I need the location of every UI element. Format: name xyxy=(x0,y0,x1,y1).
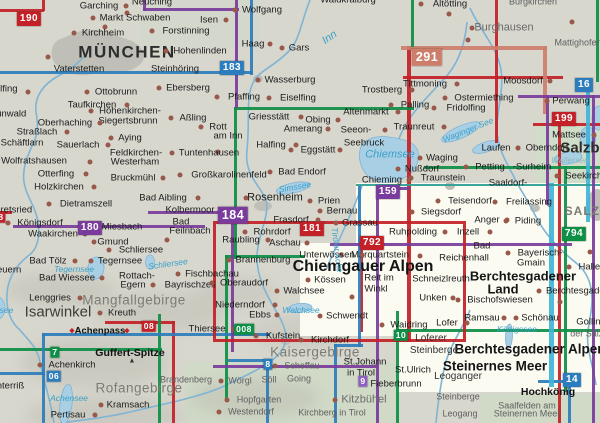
place-label: Schwendt xyxy=(326,311,368,321)
place-label: Leoganger xyxy=(434,372,482,382)
place-label: Golling xyxy=(576,317,600,327)
town-dot xyxy=(333,221,338,226)
map-index-canvas[interactable]: GarchingMarkt SchwabenKirchheimNeuchingF… xyxy=(0,0,600,423)
place-label: Siegertsbrunn xyxy=(98,116,157,126)
place-label: Ruhpolding xyxy=(389,227,437,237)
town-dot xyxy=(306,278,311,283)
town-dot xyxy=(91,16,96,21)
town-dot xyxy=(99,403,104,408)
place-label: Hallein xyxy=(578,262,600,272)
place-label: Gräfelfing xyxy=(0,84,18,94)
place-label: Aßling xyxy=(180,113,207,123)
town-dot xyxy=(84,90,89,95)
place-label: Kufstein xyxy=(266,331,300,341)
place-label: Piding xyxy=(515,216,541,226)
sheet-boundary-line xyxy=(42,333,45,423)
place-label: Wörgl xyxy=(228,377,252,386)
town-dot xyxy=(504,219,509,224)
place-label: Achenkirch xyxy=(49,360,96,370)
town-dot xyxy=(338,148,343,153)
place-label: Amerang xyxy=(284,124,323,134)
map-sheet-badge[interactable]: 199 xyxy=(552,112,576,126)
place-label: Bad Wiessee xyxy=(39,273,95,283)
town-dot xyxy=(388,103,393,108)
place-label: Steinernen Meer xyxy=(494,410,561,419)
map-sheet-badge[interactable]: 792 xyxy=(360,236,384,250)
town-dot xyxy=(455,82,460,87)
place-label: ◆ xyxy=(124,328,129,335)
place-label: Lenggries xyxy=(29,293,71,303)
town-dot xyxy=(215,95,220,100)
town-dot xyxy=(38,363,43,368)
map-sheet-badge[interactable]: 16 xyxy=(575,78,593,92)
place-label: MÜNCHEN xyxy=(78,44,175,61)
place-label: Brannenburg xyxy=(236,255,291,265)
place-label: Tegernsee xyxy=(98,256,142,266)
place-label: Moosdorf xyxy=(503,76,543,86)
place-label: Unken xyxy=(419,293,446,303)
town-dot xyxy=(463,165,468,170)
place-label: Berchtesgadener Alpen xyxy=(454,342,600,356)
town-dot xyxy=(307,199,312,204)
place-label: Großkarolinenfeld xyxy=(191,170,267,180)
town-dot xyxy=(151,283,156,288)
place-label: Freilassing xyxy=(506,197,552,207)
town-dot xyxy=(268,42,273,47)
town-dot xyxy=(492,200,497,205)
town-dot xyxy=(26,90,31,95)
place-label: Straßlach xyxy=(17,127,58,137)
town-dot xyxy=(513,316,518,321)
town-dot xyxy=(47,202,52,207)
place-label: Gmain xyxy=(517,258,545,268)
place-label: Oberaudorf xyxy=(220,278,268,288)
place-label: Mattsee xyxy=(552,130,586,140)
place-label: Walchsee xyxy=(283,286,324,296)
place-label: Leogang xyxy=(442,410,477,419)
place-label: Burgkirchen xyxy=(509,0,557,7)
town-dot xyxy=(177,173,182,178)
sheet-boundary-line xyxy=(411,0,414,47)
place-label: Hohenlinden xyxy=(173,46,226,56)
water-label: Walchsee xyxy=(282,306,319,315)
town-dot xyxy=(275,313,280,318)
town-dot xyxy=(588,250,593,255)
town-dot xyxy=(156,86,161,91)
place-label: Saaldorf- xyxy=(489,178,528,188)
place-label: Tuntenhausen xyxy=(179,148,239,158)
place-label: Hochkönig xyxy=(521,387,575,398)
water-label: Tegernsee xyxy=(54,265,94,274)
map-sheet-badge[interactable]: 06 xyxy=(47,371,61,382)
place-label: Achenpass xyxy=(75,326,126,336)
place-label: Steinberge xyxy=(436,393,480,402)
map-sheet-badge[interactable]: 190 xyxy=(17,12,41,26)
place-label: Petting xyxy=(475,162,505,172)
town-dot xyxy=(380,323,385,328)
place-label: Schliersee xyxy=(119,245,163,255)
map-sheet-badge[interactable]: 291 xyxy=(412,49,442,66)
map-sheet-badge[interactable]: 180 xyxy=(78,221,102,235)
place-label: St.Ulrich xyxy=(395,365,431,375)
town-dot xyxy=(256,78,261,83)
place-label: Aying xyxy=(118,133,142,143)
place-label: Waging xyxy=(426,153,458,163)
town-dot xyxy=(64,130,69,135)
place-label: Rosenheim xyxy=(247,193,303,204)
place-label: Mangfallgebirge xyxy=(82,293,186,307)
town-dot xyxy=(548,79,553,84)
town-dot xyxy=(91,185,96,190)
town-dot xyxy=(466,38,471,43)
place-label: am Inn xyxy=(213,131,242,141)
town-dot xyxy=(88,259,93,264)
town-dot xyxy=(409,210,414,215)
place-label: Bernau xyxy=(327,206,358,216)
place-label: Garching xyxy=(80,1,119,11)
town-dot xyxy=(332,398,337,403)
town-dot xyxy=(442,96,447,101)
place-label: Tittmoning xyxy=(403,79,447,89)
place-label: Griesstätt xyxy=(249,112,290,122)
place-label: Bad Endorf xyxy=(278,167,326,177)
place-label: Seebruck xyxy=(344,138,384,148)
place-label: Ebbs xyxy=(249,310,271,320)
map-sheet-badge[interactable]: 8 xyxy=(0,212,6,223)
town-dot xyxy=(195,196,200,201)
map-sheet-badge[interactable]: 9 xyxy=(358,376,367,387)
place-label: Perwang xyxy=(552,96,590,106)
place-label: Forstinning xyxy=(163,26,210,36)
place-label: Scheffau xyxy=(284,362,319,371)
town-dot xyxy=(91,240,96,245)
town-dot xyxy=(225,398,230,403)
town-dot xyxy=(98,311,103,316)
town-dot xyxy=(359,253,364,258)
town-dot xyxy=(515,146,520,151)
town-dot xyxy=(409,176,414,181)
place-label: Kolbermoor xyxy=(165,205,214,215)
town-dot xyxy=(243,230,248,235)
place-label: Bad Aibling xyxy=(139,193,187,203)
town-dot xyxy=(233,8,238,13)
town-dot xyxy=(88,160,93,165)
town-dot xyxy=(325,127,330,132)
place-label: Hopfgarten xyxy=(237,396,282,405)
place-label: Grünwald xyxy=(0,109,26,119)
water-label: Chiemsee xyxy=(365,150,415,161)
place-label: Wasserburg xyxy=(265,75,316,85)
place-label: Thiersee xyxy=(189,324,226,334)
place-label: Waidring xyxy=(390,320,427,330)
place-label: der Salzach xyxy=(570,330,600,339)
map-sheet-badge[interactable]: 184 xyxy=(218,207,248,224)
place-label: Halfing xyxy=(256,140,286,150)
town-dot xyxy=(218,379,223,384)
town-dot xyxy=(107,248,112,253)
town-dot xyxy=(299,115,304,120)
place-label: Ramsau xyxy=(464,313,499,323)
place-label: Inzell xyxy=(457,227,479,237)
place-label: Dietramszell xyxy=(60,199,112,209)
town-dot xyxy=(6,221,11,226)
place-label: Kirchberg in Tirol xyxy=(298,409,366,418)
place-label: Gars xyxy=(289,43,310,53)
town-dot xyxy=(441,125,446,130)
map-sheet-badge[interactable]: 08 xyxy=(142,321,156,332)
sheet-boundary-line xyxy=(172,321,175,423)
town-dot xyxy=(272,303,277,308)
place-label: Traunstein xyxy=(421,173,466,183)
town-dot xyxy=(506,251,511,256)
town-dot xyxy=(418,2,423,7)
town-dot xyxy=(149,29,154,34)
place-label: Fieberbrunn xyxy=(370,379,421,389)
map-sheet-badge[interactable]: 008 xyxy=(234,324,254,335)
town-dot xyxy=(71,31,76,36)
place-label: Altötting xyxy=(433,0,467,9)
place-label: Otterfing xyxy=(38,169,74,179)
town-dot xyxy=(555,174,560,179)
place-label: Anger xyxy=(474,215,499,225)
place-label: -Surheim xyxy=(513,162,552,172)
place-label: Waakirchen xyxy=(28,229,78,239)
place-label: Steinberge xyxy=(410,346,458,356)
place-label: Chiemgauer Alpen xyxy=(293,259,434,275)
place-label: Palling xyxy=(401,100,430,110)
town-dot xyxy=(273,364,278,369)
town-dot xyxy=(591,133,596,138)
town-dot xyxy=(226,258,231,263)
place-label: Land xyxy=(487,283,518,296)
place-label: Trostberg xyxy=(362,85,402,95)
place-label: Going xyxy=(287,375,311,384)
place-label: Wolfratshausen xyxy=(1,156,67,166)
place-label: Bayrischzell xyxy=(165,280,216,290)
water-label: Wallersee xyxy=(551,156,589,165)
sheet-boundary-line xyxy=(143,8,239,11)
place-label: Laufen xyxy=(481,143,510,153)
place-label: Egern xyxy=(120,280,145,290)
sheet-boundary-line xyxy=(42,0,45,11)
place-label: Kramsach xyxy=(107,400,150,410)
town-dot xyxy=(305,241,310,246)
place-label: Markt Schwaben xyxy=(100,13,171,23)
town-dot xyxy=(160,176,165,181)
place-label: Sauerlach xyxy=(57,140,100,150)
town-dot xyxy=(266,96,271,101)
town-dot xyxy=(88,109,93,114)
place-label: Haag xyxy=(242,39,265,49)
map-sheet-badge[interactable]: 794 xyxy=(562,227,586,241)
map-sheet-badge[interactable]: 8 xyxy=(263,359,272,370)
place-label: Burghausen xyxy=(474,23,533,34)
sheet-boundary-line xyxy=(105,321,175,324)
town-dot xyxy=(570,20,575,25)
town-dot xyxy=(170,151,175,156)
town-dot xyxy=(436,199,441,204)
place-label: Ebersberg xyxy=(166,83,210,93)
town-dot xyxy=(335,118,340,123)
town-dot xyxy=(289,148,294,153)
map-sheet-badge[interactable]: 183 xyxy=(220,61,244,75)
place-label: Holzkirchen xyxy=(34,182,84,192)
water-label: Walchensee xyxy=(0,306,13,315)
place-label: Bruckmühl xyxy=(111,173,156,183)
place-label: Söll xyxy=(261,376,276,385)
town-dot xyxy=(165,238,170,243)
place-label: Bad xyxy=(474,241,491,251)
place-label: Vaterstetten xyxy=(54,64,105,74)
town-dot xyxy=(210,281,215,286)
sheet-boundary-line xyxy=(0,372,45,375)
place-label: Lofer xyxy=(436,318,458,328)
town-dot xyxy=(456,298,461,303)
town-dot xyxy=(293,143,298,148)
place-label: Siegsdorf xyxy=(421,207,461,217)
place-label: Salzburg xyxy=(560,141,600,156)
town-dot xyxy=(175,272,180,277)
place-label: Feilnbach xyxy=(169,226,210,236)
map-sheet-badge[interactable]: 181 xyxy=(300,222,324,236)
place-label: Hinterriß xyxy=(0,381,24,391)
town-dot xyxy=(470,26,475,31)
town-dot xyxy=(536,289,541,294)
town-dot xyxy=(318,209,323,214)
town-dot xyxy=(450,296,455,301)
place-label: Fridolfing xyxy=(446,103,485,113)
place-label: Kirchheim xyxy=(82,28,124,38)
town-dot xyxy=(224,18,229,23)
place-label: Mattighofen xyxy=(554,39,600,48)
place-label: Waldkraiburg xyxy=(320,0,376,5)
town-dot xyxy=(217,410,222,415)
town-dot xyxy=(443,230,448,235)
place-label: Eggstätt xyxy=(301,145,336,155)
map-sheet-badge[interactable]: 14 xyxy=(563,373,581,387)
town-dot xyxy=(243,196,248,201)
map-sheet-badge[interactable]: 159 xyxy=(376,185,400,199)
place-label: Benediktbeuern xyxy=(0,265,21,275)
town-dot xyxy=(502,316,507,321)
water-label: Königssee xyxy=(497,325,537,334)
place-label: Altenmarkt xyxy=(343,107,388,117)
water-label: Achensee xyxy=(50,394,88,403)
town-dot xyxy=(383,128,388,133)
town-dot xyxy=(169,116,174,121)
place-label: Miesbach xyxy=(102,222,143,232)
place-label: Isen xyxy=(200,15,218,25)
place-label: SALZBURG xyxy=(565,205,600,217)
place-label: Schäftlarn xyxy=(1,138,44,148)
place-label: Westendorf xyxy=(228,408,274,417)
place-label: Steinhöring xyxy=(151,64,199,74)
place-label: Chieming xyxy=(362,175,402,185)
place-label: Wolfgang xyxy=(242,5,282,15)
town-dot xyxy=(46,55,51,60)
place-label: Ottobrunn xyxy=(95,87,137,97)
town-dot xyxy=(97,121,102,126)
place-label: Berchtesgadener xyxy=(470,270,576,283)
place-label: Königsdorf xyxy=(17,218,62,228)
town-dot xyxy=(99,276,104,281)
place-label: Traunreut xyxy=(394,122,435,132)
town-dot xyxy=(199,125,204,130)
town-dot xyxy=(163,49,168,54)
place-label: Teisendorf xyxy=(448,196,492,206)
place-label: Winkl xyxy=(364,284,387,294)
town-dot xyxy=(108,136,113,141)
town-dot xyxy=(396,110,401,115)
place-label: St.Johann xyxy=(344,357,387,367)
place-label: Eiselfing xyxy=(280,93,316,103)
place-label: Westerham xyxy=(111,157,159,167)
town-dot xyxy=(447,12,452,17)
town-dot xyxy=(558,300,563,305)
town-dot xyxy=(73,259,78,264)
place-label: Niederndorf xyxy=(215,300,265,310)
town-dot xyxy=(268,170,273,175)
place-label: Kitzbühel xyxy=(341,395,386,406)
town-dot xyxy=(432,106,437,111)
place-label: Rohrdorf xyxy=(254,227,291,237)
place-label: Rofangebirge xyxy=(95,381,182,395)
town-dot xyxy=(83,172,88,177)
map-sheet-badge[interactable]: 7 xyxy=(50,347,59,358)
place-label: Neuching xyxy=(132,0,172,7)
town-dot xyxy=(124,4,129,9)
town-dot xyxy=(350,295,355,300)
town-dot xyxy=(544,99,549,104)
place-label: Schönau xyxy=(521,313,559,323)
place-label: Aschau xyxy=(269,238,301,248)
town-dot xyxy=(488,230,493,235)
town-dot xyxy=(93,413,98,418)
place-label: Reichenhall xyxy=(439,253,489,263)
town-dot xyxy=(280,46,285,51)
place-label: Pfaffing xyxy=(228,92,260,102)
sheet-boundary-line xyxy=(158,314,161,423)
map-sheet-badge[interactable]: 10 xyxy=(394,330,408,341)
town-dot xyxy=(418,156,423,161)
place-label: Schneizlreuth xyxy=(412,274,470,284)
place-label: Kössen xyxy=(314,275,346,285)
town-dot xyxy=(254,334,259,339)
town-dot xyxy=(395,167,400,172)
place-label: Grassau xyxy=(342,218,378,228)
place-label: Bischofswiesen xyxy=(467,295,532,305)
town-dot xyxy=(275,289,280,294)
place-label: Seekirchen xyxy=(565,171,600,181)
place-label: Berchtesgaden xyxy=(546,286,600,296)
sheet-boundary-line xyxy=(0,71,253,74)
place-label: Seeon- xyxy=(341,125,372,135)
place-label: ▲ xyxy=(129,358,136,365)
place-label: Kreuth xyxy=(108,308,136,318)
place-label: Loferer xyxy=(415,334,447,344)
place-label: Pertisau xyxy=(51,410,86,420)
